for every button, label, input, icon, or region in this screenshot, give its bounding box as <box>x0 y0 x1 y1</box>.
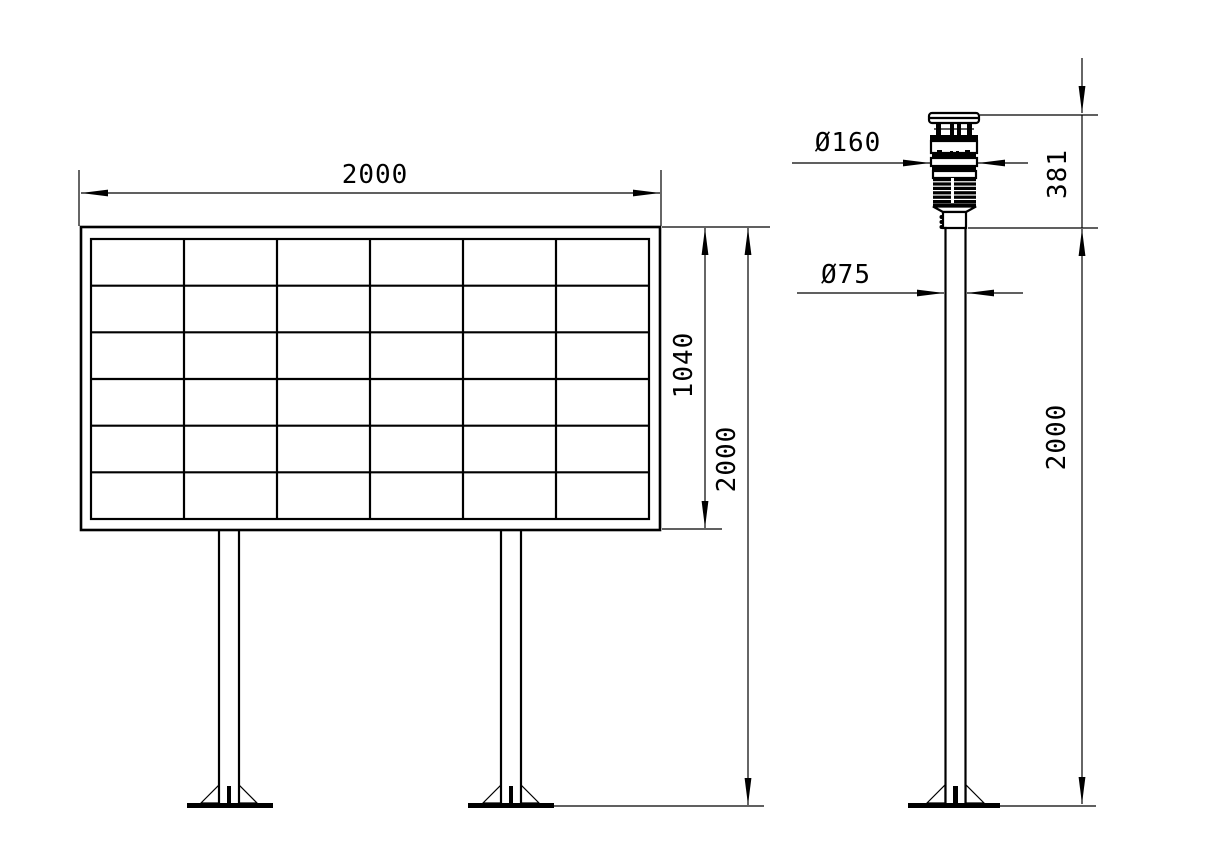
sensor-lower-body <box>933 171 976 178</box>
dim-label-pole-height: 2000 <box>1042 404 1072 471</box>
front-view <box>79 170 770 808</box>
dim-label-sensor-diameter: Ø160 <box>815 128 882 158</box>
sensor-mid-body <box>931 158 977 166</box>
right-leg <box>468 531 554 808</box>
dim-label-pole-diameter: Ø75 <box>821 260 871 290</box>
dim-label-total-height: 2000 <box>712 426 742 493</box>
right-anchor-stub <box>509 786 513 803</box>
mounting-pole <box>908 228 1000 808</box>
drawing-sheet: 2000 1040 2000 Ø160 Ø75 381 2000 <box>0 0 1228 864</box>
dim-label-panel-height: 1040 <box>669 332 699 399</box>
sensor-neck <box>940 212 967 229</box>
neck-bolt <box>940 215 944 219</box>
left-anchor-stub <box>227 786 231 803</box>
dim-label-sensor-height: 381 <box>1043 149 1073 199</box>
left-leg <box>187 531 273 808</box>
sensor-cap <box>929 113 979 123</box>
pole-baseplate <box>908 803 1000 808</box>
pole-anchor-stub <box>953 786 958 803</box>
neck-bolt <box>940 220 944 224</box>
sensor-posts <box>934 123 974 136</box>
left-baseplate <box>187 803 273 808</box>
side-height-dimensions <box>968 58 1098 804</box>
panel-grid-lines <box>91 239 649 519</box>
neck-bolt <box>940 225 944 229</box>
weather-sensor <box>929 113 979 229</box>
right-baseplate <box>468 803 554 808</box>
sensor-louvers <box>933 178 976 207</box>
dim-label-front-width: 2000 <box>342 160 409 190</box>
